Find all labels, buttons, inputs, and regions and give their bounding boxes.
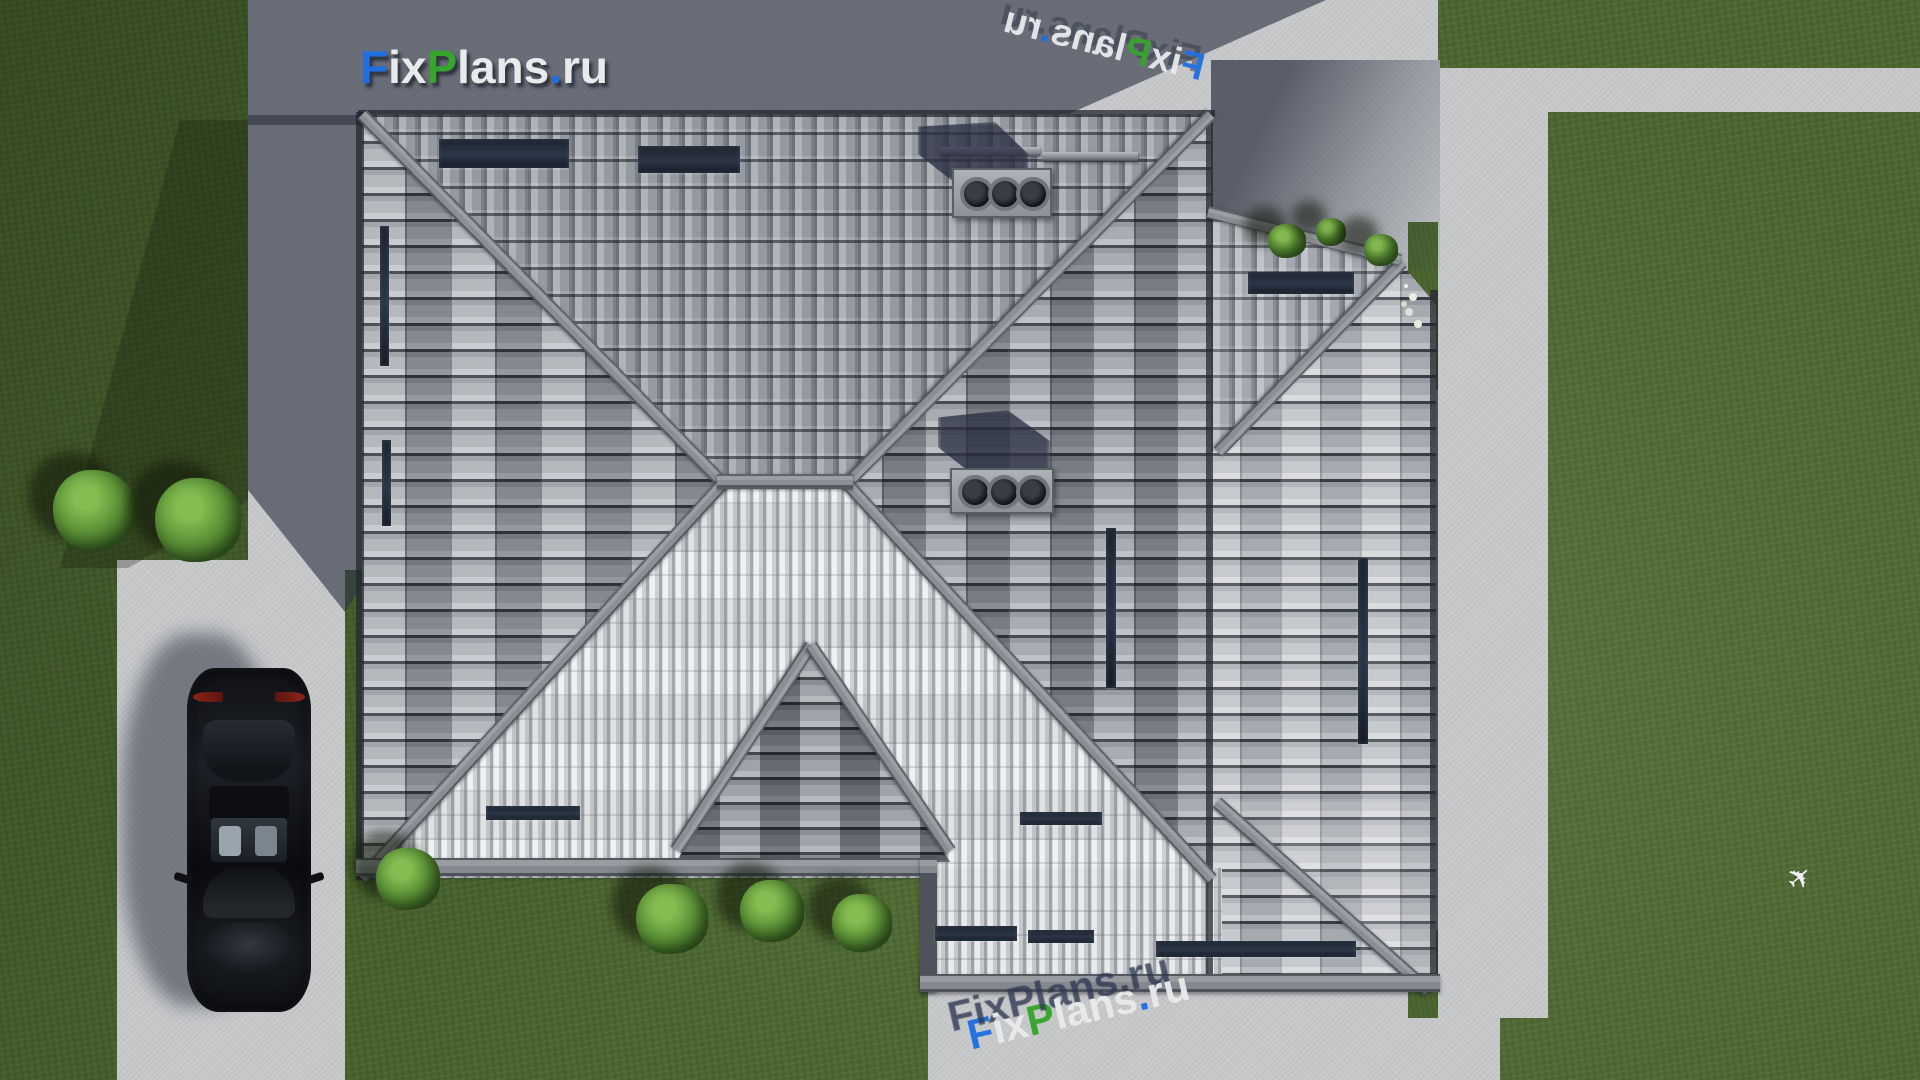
roof-window-north-2 bbox=[638, 146, 740, 173]
flowers bbox=[1404, 284, 1408, 288]
eave-top bbox=[358, 110, 1215, 117]
bush bbox=[53, 470, 135, 550]
car-hood bbox=[201, 922, 297, 996]
bush bbox=[376, 848, 440, 910]
roof-bar-east bbox=[1106, 528, 1116, 688]
bush bbox=[832, 894, 892, 952]
bush bbox=[1268, 224, 1306, 258]
snow-rail-2 bbox=[1042, 152, 1138, 161]
roof-bar-extension bbox=[1358, 558, 1368, 744]
car-taillight-right bbox=[275, 692, 305, 702]
logo-letter: ix bbox=[388, 41, 426, 93]
bush bbox=[1364, 234, 1398, 266]
car-taillight-left bbox=[193, 692, 223, 702]
eave-bar-south bbox=[356, 858, 936, 876]
roof-window-lower-3 bbox=[1156, 941, 1356, 957]
bush bbox=[636, 884, 708, 954]
eave-ext-right bbox=[1430, 290, 1438, 992]
chimney-pipe-icon bbox=[1016, 177, 1050, 211]
car bbox=[187, 668, 311, 1012]
roof-bar-west-1 bbox=[380, 226, 389, 366]
chimney-pipe-icon bbox=[1016, 475, 1050, 509]
car-seat bbox=[255, 826, 277, 856]
roof-window-lower-2 bbox=[1028, 930, 1094, 943]
logo-letter: . bbox=[549, 41, 562, 93]
car-seat bbox=[219, 826, 241, 856]
roof-window-south-low bbox=[1020, 812, 1102, 825]
bush bbox=[155, 478, 241, 562]
car-roof bbox=[209, 786, 289, 820]
roof-window-north-1 bbox=[439, 139, 569, 168]
path-top-right bbox=[1400, 68, 1920, 112]
fixplans-logo: FixPlans.ru bbox=[360, 40, 608, 94]
car-windshield bbox=[203, 866, 295, 918]
bush bbox=[740, 880, 804, 942]
logo-letter: P bbox=[426, 41, 457, 93]
roof-window-lower-1 bbox=[935, 926, 1017, 941]
logo-letter: ru bbox=[562, 41, 608, 93]
car-rear-window bbox=[203, 720, 295, 782]
eave-step-vertical bbox=[920, 858, 937, 992]
logo-letter: F bbox=[360, 41, 388, 93]
path-right bbox=[1438, 68, 1548, 1018]
eave-left bbox=[356, 112, 364, 880]
bush bbox=[1316, 218, 1346, 246]
main-ridge bbox=[717, 474, 853, 489]
roof-seam-right bbox=[1206, 114, 1213, 992]
roof-window-extension bbox=[1248, 272, 1354, 294]
roof-bar-west-2 bbox=[382, 440, 391, 526]
render-canvas: { "brand": { "full_text": "FixPlans.ru",… bbox=[0, 0, 1920, 1080]
chimney-2 bbox=[950, 468, 1054, 514]
car-sunroof bbox=[211, 818, 287, 862]
logo-letter: lans bbox=[457, 41, 549, 93]
roof-window-west-low bbox=[486, 806, 580, 820]
chimney-1 bbox=[952, 168, 1052, 218]
